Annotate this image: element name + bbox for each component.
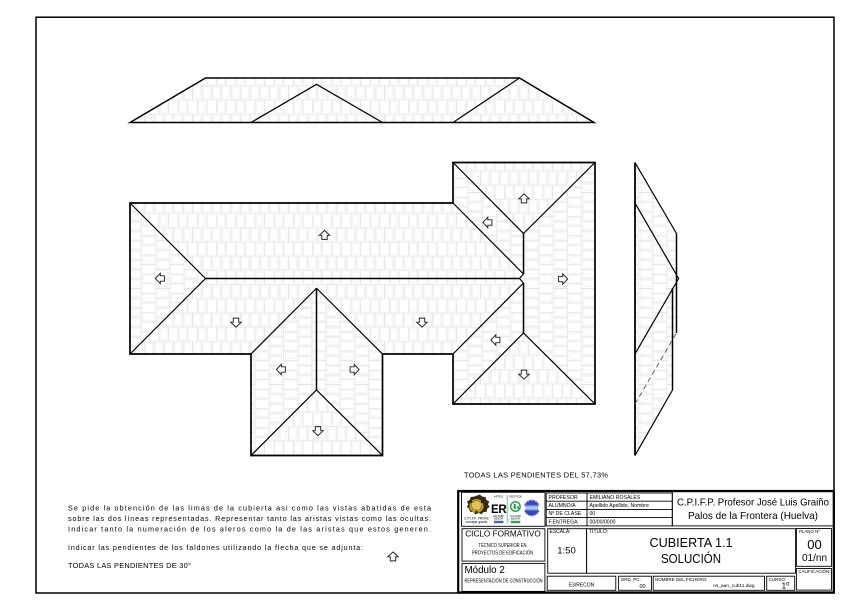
svg-text:C.P.I.F.P. Profesor José Luis: C.P.I.F.P. Profesor José Luis Graiño — [677, 497, 829, 509]
svg-text:1º: 1º — [782, 580, 790, 590]
svg-text:CICLO FORMATIVO: CICLO FORMATIVO — [465, 529, 541, 539]
svg-text:AENOR: AENOR — [494, 517, 503, 521]
svg-text:Indicar las pendientes de los: Indicar las pendientes de los faldones u… — [68, 543, 363, 552]
svg-text:REPRESENTACIÓN DE CONSTRUCCIÓN: REPRESENTACIÓN DE CONSTRUCCIÓN — [465, 578, 543, 585]
svg-text:TODAS LAS PENDIENTES DEL 57,73: TODAS LAS PENDIENTES DEL 57,73% — [464, 471, 608, 480]
svg-text:1:50: 1:50 — [557, 545, 576, 556]
svg-text:00/00/0000: 00/00/0000 — [590, 519, 616, 525]
svg-text:nn_aan_cub11.dwg: nn_aan_cub11.dwg — [713, 583, 755, 589]
svg-text:CUBIERTA 1.1: CUBIERTA 1.1 — [650, 535, 733, 550]
svg-text:Apellido Apellido, Nombre: Apellido Apellido, Nombre — [590, 503, 650, 509]
svg-text:NOMBRE DEL FICHERO:: NOMBRE DEL FICHERO: — [655, 577, 707, 582]
svg-text:CALIFICACIÓN:: CALIFICACIÓN: — [798, 569, 830, 574]
svg-text:EMILIANO ROSALES: EMILIANO ROSALES — [590, 495, 641, 501]
svg-text:Nº DE CLASE: Nº DE CLASE — [549, 511, 582, 517]
svg-text:TÉCNICO SUPERIOR EN: TÉCNICO SUPERIOR EN — [479, 542, 527, 549]
svg-text:00: 00 — [640, 584, 646, 590]
svg-text:SOLUCIÓN: SOLUCIÓN — [661, 551, 721, 566]
svg-text:Palos de la Frontera (Huelva): Palos de la Frontera (Huelva) — [688, 510, 818, 522]
svg-text:TÍTULO:: TÍTULO: — [589, 528, 608, 535]
svg-text:F.ENTREGA: F.ENTREGA — [549, 519, 579, 525]
svg-text:GESTIÓN: GESTIÓN — [509, 493, 522, 498]
svg-text:Se pide la obtención de las li: Se pide la obtención de las limas de la … — [68, 504, 431, 513]
svg-text:00: 00 — [590, 511, 596, 517]
svg-text:ORD. PC:: ORD. PC: — [621, 577, 641, 582]
svg-text:Módulo 2: Módulo 2 — [465, 565, 505, 576]
svg-text:ESCALA:: ESCALA: — [550, 529, 571, 535]
svg-text:00: 00 — [807, 537, 821, 552]
svg-text:TODAS LAS PENDIENTES DE 30°: TODAS LAS PENDIENTES DE 30° — [68, 561, 191, 570]
svg-text:sobre las dos líneas represent: sobre las dos líneas representadas. Repr… — [68, 514, 431, 523]
svg-text:01/nn: 01/nn — [802, 553, 827, 564]
svg-text:ALUMNO/A: ALUMNO/A — [549, 503, 577, 509]
svg-text:PROFESOR: PROFESOR — [549, 495, 578, 501]
svg-text:Indicar tanto la numeración de: Indicar tanto la numeración de los alero… — [68, 525, 431, 534]
svg-text:APTES: APTES — [494, 494, 503, 498]
svg-text:PROYECTOS DE EDIFICACIÓN: PROYECTOS DE EDIFICACIÓN — [472, 550, 533, 557]
svg-text:PLANO Nº: PLANO Nº — [799, 529, 820, 534]
svg-text:AENOR: AENOR — [511, 517, 520, 521]
svg-text:morapar grante: morapar grante — [466, 520, 488, 524]
svg-text:E3/RECON: E3/RECON — [569, 583, 595, 589]
